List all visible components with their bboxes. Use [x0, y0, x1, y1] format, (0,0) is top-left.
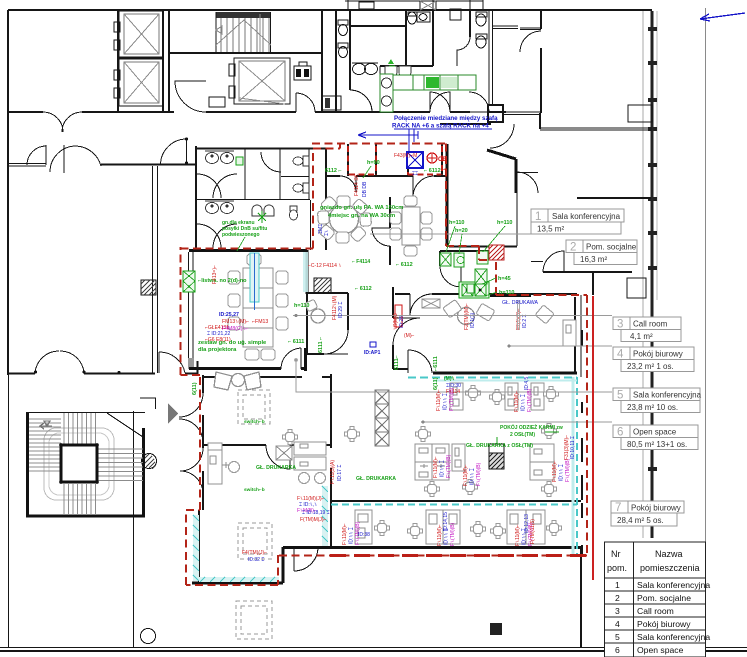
svg-text:⌶⌶: ⌶⌶ [412, 171, 418, 177]
svg-text:2: 2 [570, 242, 576, 254]
svg-text:dla projektora: dla projektora [198, 347, 237, 353]
svg-text:FM13⑊(M)⌐: FM13⑊(M)⌐ [222, 319, 249, 325]
svg-text:ID:28: ID:28 [399, 316, 405, 328]
svg-text:6112 ⌐: 6112 ⌐ [325, 168, 342, 174]
svg-text:⌐ 6112: ⌐ 6112 [355, 286, 372, 292]
svg-text:F4114 SK: F4114 SK [354, 173, 360, 196]
svg-text:3: 3 [615, 606, 620, 616]
svg-text:Sala konferencyjna: Sala konferencyjna [552, 212, 621, 221]
svg-text:switch⌐b: switch⌐b [244, 487, 265, 493]
svg-text:1: 1 [535, 211, 541, 223]
svg-text:Pokój biurowy: Pokój biurowy [637, 619, 691, 629]
svg-text:2 OSŁ(TM): 2 OSŁ(TM) [510, 432, 535, 438]
svg-text:6: 6 [617, 427, 623, 439]
svg-text:F43(M)⑂M: F43(M)⑂M [394, 153, 417, 159]
svg-text:CB: CB [438, 157, 447, 163]
svg-text:4miejsc gn. na WA 30cm: 4miejsc gn. na WA 30cm [328, 213, 395, 219]
svg-text:ID:AP1: ID:AP1 [364, 350, 381, 356]
svg-text:6111⌐: 6111⌐ [394, 355, 400, 370]
svg-text:ID:38: ID:38 [358, 532, 370, 538]
svg-text:ID:25,27: ID:25,27 [219, 312, 239, 318]
svg-text:ID:1(3): ID:1(3) [470, 312, 476, 328]
svg-text:(M)⑊: (M)⑊ [444, 376, 455, 382]
svg-text:⌐ 6112: ⌐ 6112 [396, 262, 413, 268]
svg-text:4: 4 [615, 619, 620, 629]
svg-text:F413=)⌐: F413=)⌐ [212, 265, 218, 284]
svg-text:h=20: h=20 [455, 228, 468, 234]
svg-text:80,5 m² 13+1 os.: 80,5 m² 13+1 os. [627, 440, 687, 449]
svg-text:F4M8(C)⑊⌐: F4M8(C)⑊⌐ [222, 326, 249, 332]
svg-text:pomieszczenia: pomieszczenia [640, 563, 700, 573]
svg-text:F⑊11(5)(A): F⑊11(5)(A) [330, 460, 336, 484]
svg-text:ID:2 ⌶: ID:2 ⌶ [522, 314, 528, 328]
svg-text:28,4 m² 5 os.: 28,4 m² 5 os. [617, 516, 664, 525]
svg-text:gniazdo gn. ułş PA. WA 150cm: gniazdo gn. ułş PA. WA 150cm [320, 205, 403, 211]
svg-text:⌐ 6112: ⌐ 6112 [424, 168, 441, 174]
svg-text:6: 6 [615, 645, 620, 655]
svg-text:Sala konferencyjna: Sala konferencyjna [637, 580, 710, 590]
svg-text:23,2 m² 1 os.: 23,2 m² 1 os. [627, 362, 674, 371]
svg-text:Nr: Nr [611, 549, 621, 559]
svg-text:6(11): 6(11) [433, 377, 439, 390]
svg-text:Pokój biurowy: Pokój biurowy [633, 350, 683, 359]
svg-text:16,3 m²: 16,3 m² [580, 255, 607, 264]
svg-text:Call room: Call room [633, 320, 668, 329]
svg-text:⌐listwa. no 2(d)-no: ⌐listwa. no 2(d)-no [198, 278, 247, 284]
svg-text:h=45: h=45 [498, 276, 511, 282]
svg-text:GŁ. DRUKARKA z OSŁ(TM): GŁ. DRUKARKA z OSŁ(TM) [466, 443, 533, 449]
svg-text:RACK NA +6 a szafą RACK na +: RACK NA +6 a szafą RACK na +4 [392, 123, 489, 130]
svg-text:Call room: Call room [637, 606, 674, 616]
svg-text:⌐FM13: ⌐FM13 [252, 319, 268, 325]
svg-text:⌐C-12 F4114 ⑊: ⌐C-12 F4114 ⑊ [308, 263, 341, 269]
svg-text:GŁ. DRUKAWA: GŁ. DRUKAWA [502, 300, 538, 306]
svg-text:Open space: Open space [633, 428, 677, 437]
svg-text:(M)⌐: (M)⌐ [404, 333, 414, 339]
svg-text:Połączenie miedziane między sz: Połączenie miedziane między szafą [394, 115, 498, 122]
svg-text:F⑊114: F⑊114 [446, 389, 460, 395]
svg-text:ID:29 ⌶: ID:29 ⌶ [338, 302, 344, 318]
svg-text:F(TM)M(J)⌐: F(TM)M(J)⌐ [300, 517, 327, 523]
svg-text:⌐G6 E8(11): ⌐G6 E8(11) [205, 337, 231, 343]
svg-text:ID:17 ⌶: ID:17 ⌶ [337, 465, 343, 481]
svg-text:1: 1 [615, 580, 620, 590]
svg-text:F4(TM)(J)⌐: F4(TM)(J)⌐ [242, 550, 267, 556]
svg-text:23,8 m² 10 os.: 23,8 m² 10 os. [627, 403, 678, 412]
svg-text:Pokój biurowy: Pokój biurowy [631, 504, 681, 513]
svg-text:GŁ. DRUKARKA: GŁ. DRUKARKA [256, 465, 296, 471]
svg-text:Pom. socjalne: Pom. socjalne [637, 593, 691, 603]
svg-text:switch⌐b: switch⌐b [244, 419, 265, 425]
svg-text:pom.: pom. [607, 563, 627, 573]
svg-text:6111 ⌐: 6111 ⌐ [318, 337, 324, 353]
svg-text:⌐ 6111: ⌐ 6111 [288, 339, 304, 345]
svg-text:5: 5 [615, 632, 620, 642]
svg-text:⌐ F4114: ⌐ F4114 [352, 259, 370, 265]
svg-text:Nazwa: Nazwa [655, 549, 683, 559]
svg-text:POKÓJ ODZIEŻ KARMI zw: POKÓJ ODZIEŻ KARMI zw [500, 423, 563, 431]
svg-text:ID:32 ⌶: ID:32 ⌶ [248, 557, 264, 563]
svg-text:h=110: h=110 [499, 290, 514, 296]
svg-text:Open space: Open space [637, 645, 684, 655]
svg-text:6(11): 6(11) [192, 382, 198, 395]
svg-text:GŁ. DRUKARKA: GŁ. DRUKARKA [356, 476, 396, 482]
svg-text:ID:4,5: ID:4,5 [524, 376, 530, 390]
svg-text:h=110: h=110 [294, 303, 309, 309]
svg-text:Sala konferencyjna: Sala konferencyjna [637, 632, 710, 642]
svg-text:DB DB: DB DB [362, 181, 368, 197]
svg-text:Sala konferencyjna: Sala konferencyjna [633, 391, 702, 400]
svg-text:h=90: h=90 [367, 160, 380, 166]
svg-text:ID:14,15: ID:14,15 [443, 512, 449, 531]
svg-text:F(TM)11(5): F(TM)11(5) [530, 519, 536, 544]
svg-text:h=110: h=110 [497, 220, 512, 226]
svg-text:4,1 m²: 4,1 m² [630, 332, 653, 341]
svg-text:⌶⑊: ⌶⑊ [324, 230, 330, 236]
svg-text:ID:10,11 ⌶: ID:10,11 ⌶ [570, 436, 576, 459]
svg-text:h=110: h=110 [449, 220, 464, 226]
svg-text:2: 2 [615, 593, 620, 603]
svg-text:3: 3 [617, 319, 623, 331]
svg-text:4: 4 [617, 349, 624, 361]
svg-text:5: 5 [617, 390, 623, 402]
svg-text:13,5 m²: 13,5 m² [537, 225, 564, 234]
svg-text:⌐6111: ⌐6111 [433, 356, 439, 371]
svg-text:Pom. socjalne: Pom. socjalne [586, 243, 637, 252]
svg-text:7: 7 [615, 502, 621, 514]
svg-text:podwieszonego: podwieszonego [222, 232, 260, 238]
svg-text:⌶ ID:18,19 ⌶: ⌶ ID:18,19 ⌶ [302, 510, 330, 516]
